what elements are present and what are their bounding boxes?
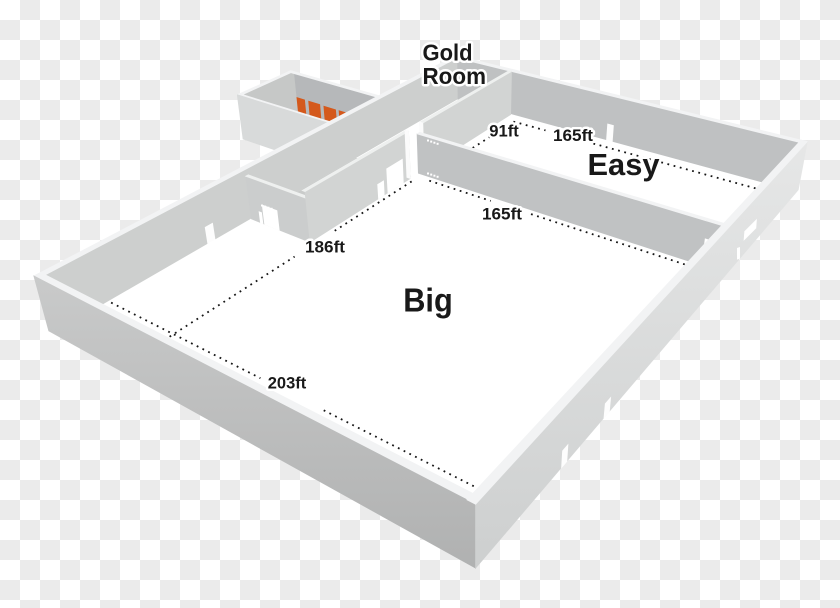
- svg-text:Room: Room: [423, 63, 487, 89]
- svg-text:165ft: 165ft: [482, 204, 522, 223]
- svg-text:Easy: Easy: [588, 147, 661, 182]
- svg-text:91ft: 91ft: [489, 121, 519, 140]
- svg-text:165ft: 165ft: [553, 126, 593, 145]
- svg-text:Gold: Gold: [423, 40, 473, 66]
- svg-text:203ft: 203ft: [268, 373, 307, 392]
- svg-text:186ft: 186ft: [305, 237, 345, 256]
- svg-text:Big: Big: [403, 282, 453, 319]
